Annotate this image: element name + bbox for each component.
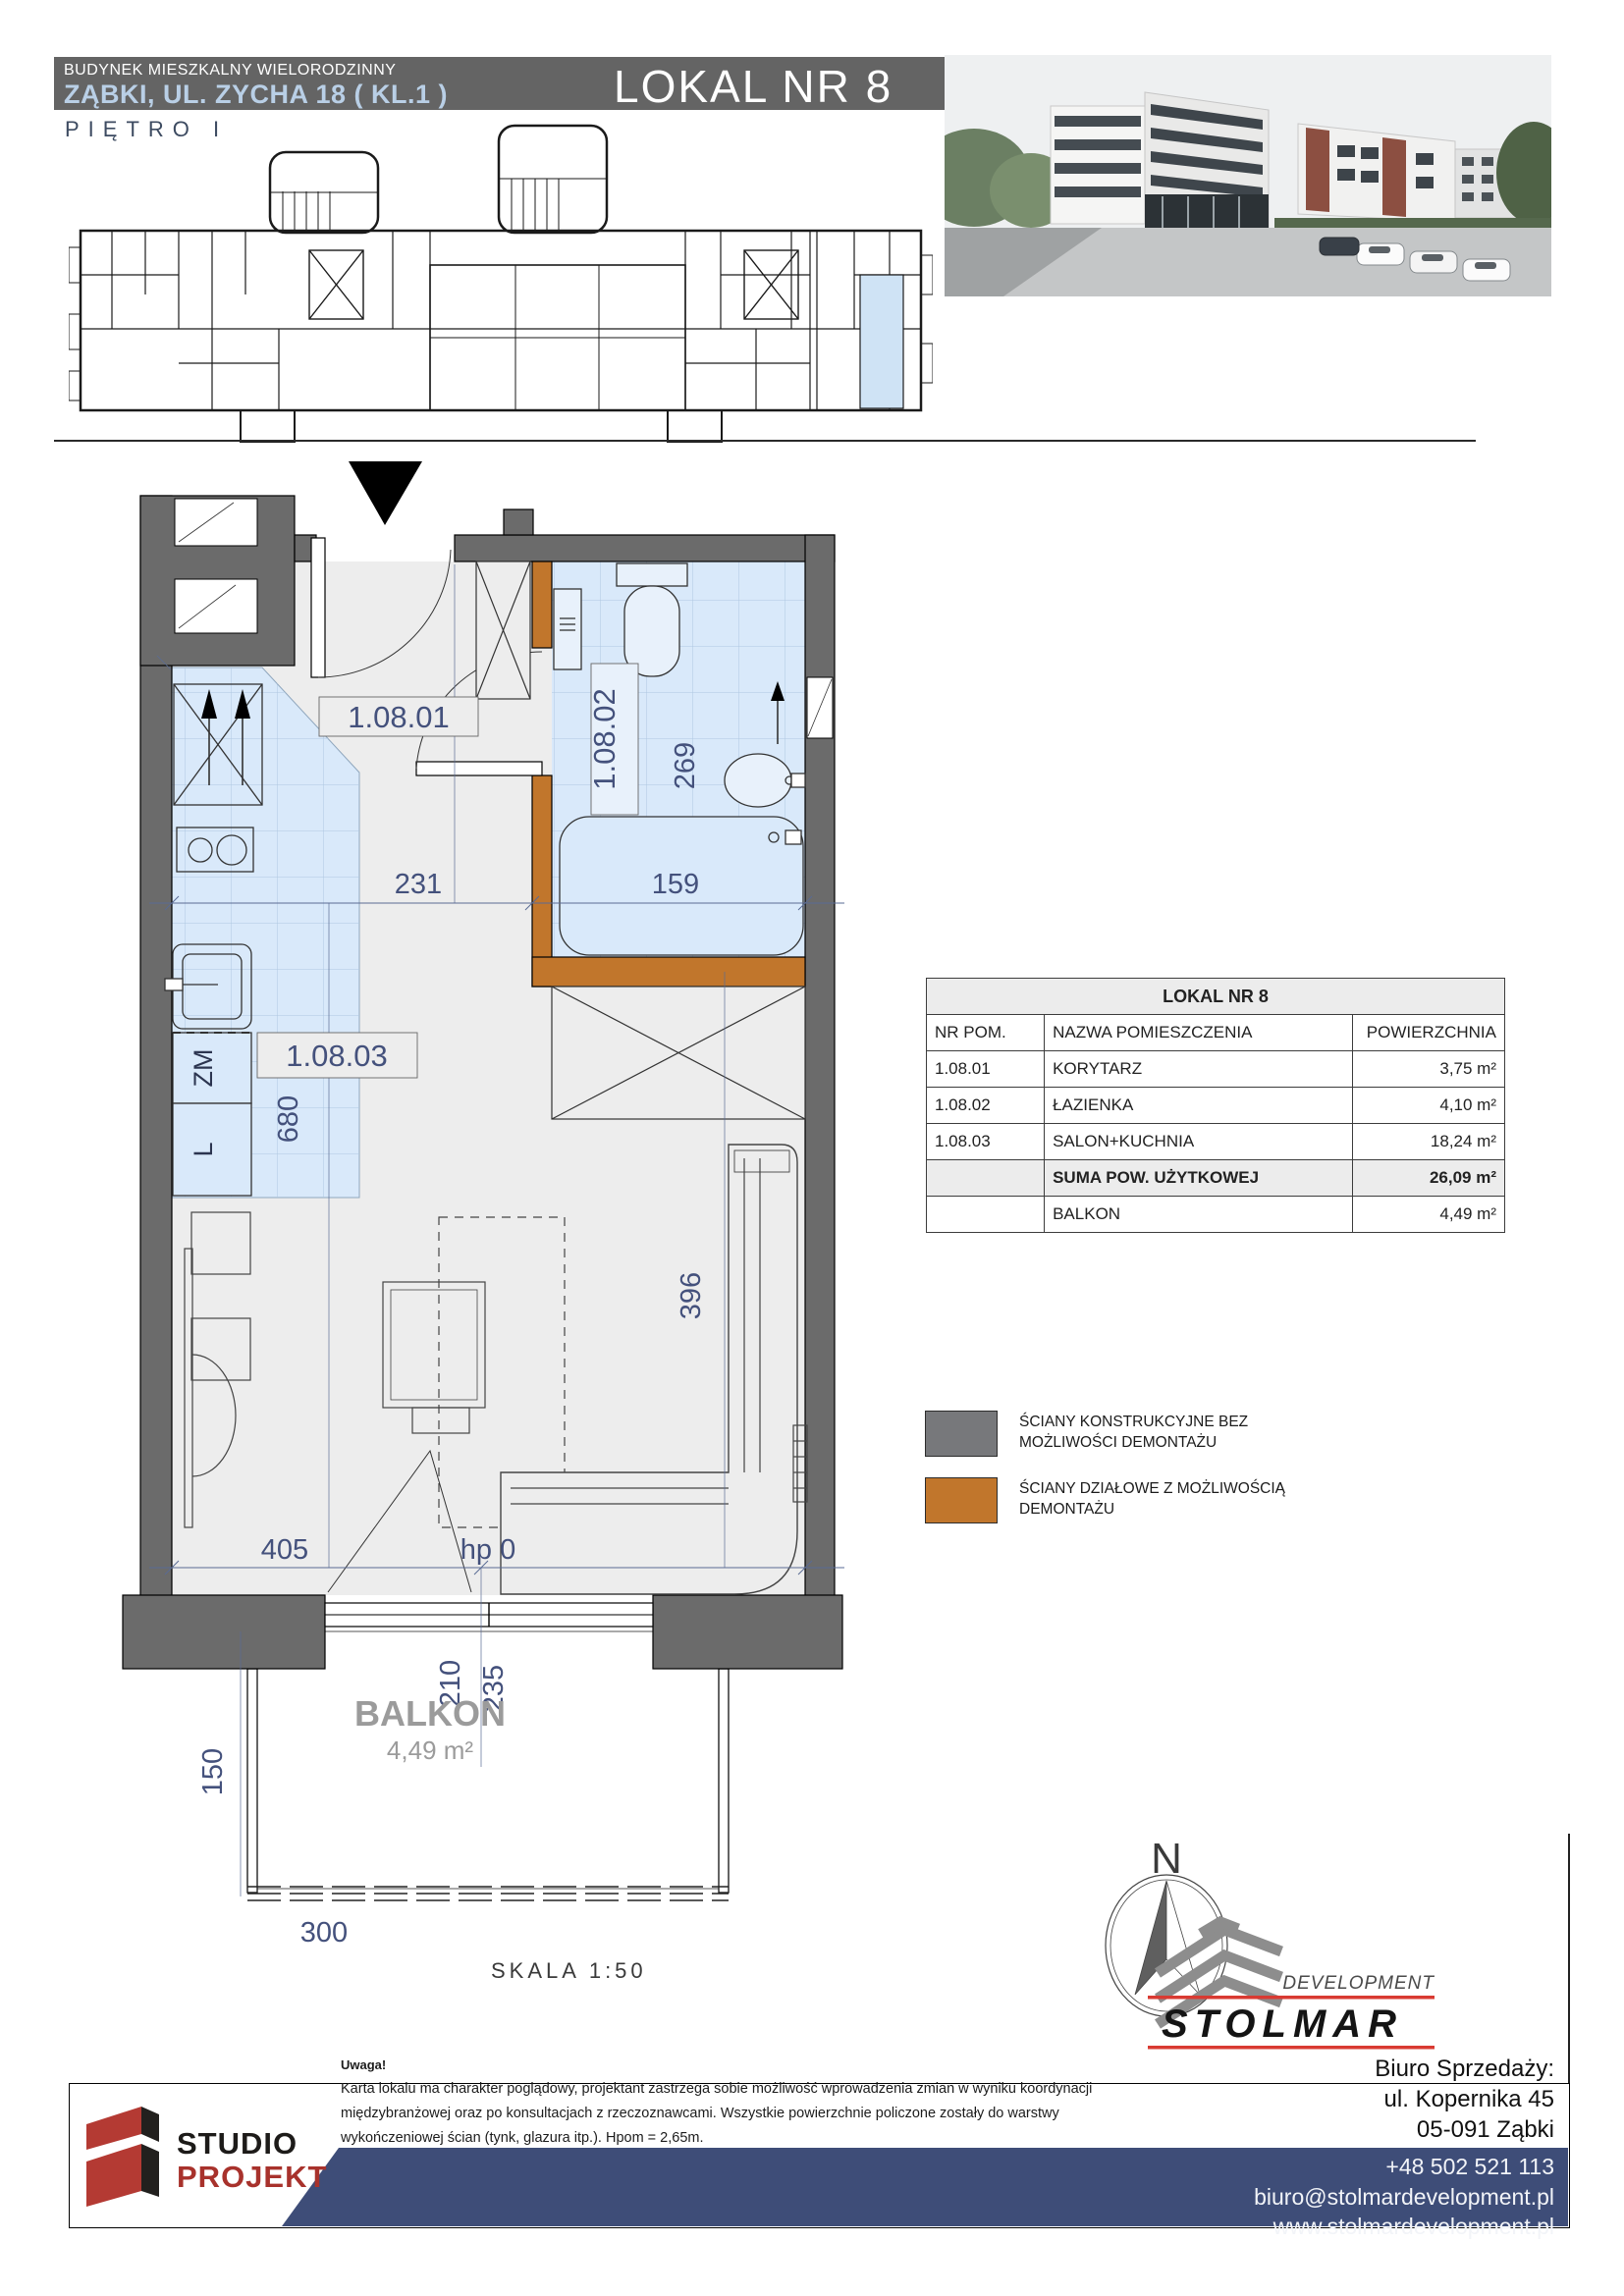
row1-name: KORYTARZ <box>1045 1051 1353 1088</box>
dim-sill-height: hp 0 <box>460 1534 515 1566</box>
dishwasher-label: ZM <box>189 1049 218 1088</box>
stolmar-red-line-bottom <box>1148 2046 1435 2050</box>
balcony-area-label: 4,49 m² <box>387 1735 473 1765</box>
scale-label: SKALA 1:50 <box>491 1958 647 1984</box>
washing-machine-symbol <box>554 589 581 669</box>
dim-hall-width: 231 <box>395 869 442 900</box>
stolmar-red-line-top <box>1148 1996 1435 2000</box>
disclaimer-heading: Uwaga! <box>341 2057 386 2072</box>
col-header-name: NAZWA POMIESZCZENIA <box>1045 1015 1353 1051</box>
office-line2: ul. Kopernika 45 <box>1159 2084 1554 2114</box>
projekt-label: PROJEKT <box>177 2162 327 2192</box>
legend-structural: ŚCIANY KONSTRUKCYJNE BEZ MOŻLIWOŚCI DEMO… <box>925 1411 1343 1457</box>
row1-nr: 1.08.01 <box>927 1051 1045 1088</box>
development-label: DEVELOPMENT <box>1282 1973 1435 1994</box>
overview-highlighted-unit <box>860 275 903 408</box>
apartment-card-page: { "header": { "building_type": "BUDYNEK … <box>0 0 1624 2296</box>
row3-area: 18,24 m² <box>1353 1124 1505 1160</box>
area-table: LOKAL NR 8 NR POM. NAZWA POMIESZCZENIA P… <box>926 978 1505 1233</box>
salon-label: 1.08.03 <box>286 1039 387 1073</box>
wardrobe-salon <box>552 987 805 1119</box>
suma-name: SUMA POW. UŻYTKOWEJ <box>1045 1160 1353 1197</box>
overview-stair-hatch <box>270 179 607 231</box>
sales-office-address: Biuro Sprzedaży: ul. Kopernika 45 05-091… <box>1159 2054 1554 2146</box>
balkon-name: BALKON <box>1045 1197 1353 1233</box>
table-row: 1.08.02 ŁAZIENKA 4,10 m² <box>927 1088 1505 1124</box>
partition-wall-label: ŚCIANY DZIAŁOWE Z MOŻLIWOŚCIĄ DEMONTAŻU <box>1019 1477 1343 1521</box>
entrance-direction-icon <box>349 461 422 525</box>
row3-nr: 1.08.03 <box>927 1124 1045 1160</box>
balkon-area: 4,49 m² <box>1353 1197 1505 1233</box>
table-row-suma: SUMA POW. UŻYTKOWEJ 26,09 m² <box>927 1160 1505 1197</box>
table-row: 1.08.03 SALON+KUCHNIA 18,24 m² <box>927 1124 1505 1160</box>
overview-floor-plan <box>69 118 933 447</box>
disclaimer-line3: wykończeniowej ścian (tynk, glazura itp.… <box>341 2126 1107 2151</box>
row3-name: SALON+KUCHNIA <box>1045 1124 1353 1160</box>
disclaimer-text: Karta lokalu ma charakter poglądowy, pro… <box>341 2077 1107 2151</box>
dim-kitchen-depth: 680 <box>273 1095 304 1143</box>
office-line1: Biuro Sprzedaży: <box>1159 2054 1554 2084</box>
area-table-title: LOKAL NR 8 <box>927 979 1505 1015</box>
studio-projekt-icon <box>84 2101 168 2211</box>
bath-label: 1.08.02 <box>587 688 622 789</box>
row1-area: 3,75 m² <box>1353 1051 1505 1088</box>
address-label: ZĄBKI, UL. ZYCHA 18 ( KL.1 ) <box>64 80 448 110</box>
contact-block: +48 502 521 113 biuro@stolmardevelopment… <box>1060 2152 1554 2242</box>
building-type-label: BUDYNEK MIESZKALNY WIELORODZINNY <box>64 62 396 80</box>
vent-niche <box>807 677 833 738</box>
col-header-nr: NR POM. <box>927 1015 1045 1051</box>
header-bar: BUDYNEK MIESZKALNY WIELORODZINNY ZĄBKI, … <box>54 57 1013 110</box>
dim-salon-width: 405 <box>261 1534 308 1566</box>
office-line3: 05-091 Ząbki <box>1159 2114 1554 2145</box>
table-row-balkon: BALKON 4,49 m² <box>927 1197 1505 1233</box>
dim-bath-depth: 269 <box>670 742 701 789</box>
contact-email[interactable]: biuro@stolmardevelopment.pl <box>1060 2182 1554 2213</box>
footer-right-margin-line <box>1568 1834 1570 2083</box>
dim-bath-width: 159 <box>652 869 699 900</box>
suma-area: 26,09 m² <box>1353 1160 1505 1197</box>
stolmar-label: STOLMAR <box>1162 2002 1403 2046</box>
structural-wall-label: ŚCIANY KONSTRUKCYJNE BEZ MOŻLIWOŚCI DEMO… <box>1019 1411 1343 1454</box>
wardrobe-corridor <box>476 561 530 699</box>
overview-building-outline <box>81 231 921 410</box>
balcony-label: BALKON <box>354 1693 506 1734</box>
hall-label: 1.08.01 <box>348 700 449 734</box>
legend-partition: ŚCIANY DZIAŁOWE Z MOŻLIWOŚCIĄ DEMONTAŻU <box>925 1477 1343 1523</box>
col-header-area: POWIERZCHNIA <box>1353 1015 1505 1051</box>
toilet-symbol <box>617 563 687 676</box>
partition-wall-swatch <box>925 1477 998 1523</box>
row2-area: 4,10 m² <box>1353 1088 1505 1124</box>
north-label: N <box>1151 1838 1182 1883</box>
disclaimer-line1: Karta lokalu ma charakter poglądowy, pro… <box>341 2077 1107 2102</box>
structural-wall-swatch <box>925 1411 998 1457</box>
disclaimer-line2: międzybranżowej oraz po konsultacjach z … <box>341 2102 1107 2126</box>
unit-floor-plan: 1.08.01 1.08.02 1.08.03 231 159 269 680 … <box>79 442 874 2002</box>
dim-balcony-depth: 150 <box>197 1748 229 1795</box>
building-render-image <box>945 55 1551 296</box>
fridge-label: L <box>189 1142 218 1156</box>
table-row: 1.08.01 KORYTARZ 3,75 m² <box>927 1051 1505 1088</box>
stolmar-logo: DEVELOPMENT STOLMAR <box>1144 1904 1438 2052</box>
contact-website[interactable]: www.stolmardevelopment.pl <box>1060 2212 1554 2242</box>
contact-phone[interactable]: +48 502 521 113 <box>1060 2152 1554 2182</box>
row2-nr: 1.08.02 <box>927 1088 1045 1124</box>
dim-balcony-width: 300 <box>300 1917 348 1949</box>
unit-title: LOKAL NR 8 <box>614 60 893 113</box>
studio-label: STUDIO <box>177 2128 298 2159</box>
dim-salon-depth: 396 <box>676 1272 707 1319</box>
row2-name: ŁAZIENKA <box>1045 1088 1353 1124</box>
